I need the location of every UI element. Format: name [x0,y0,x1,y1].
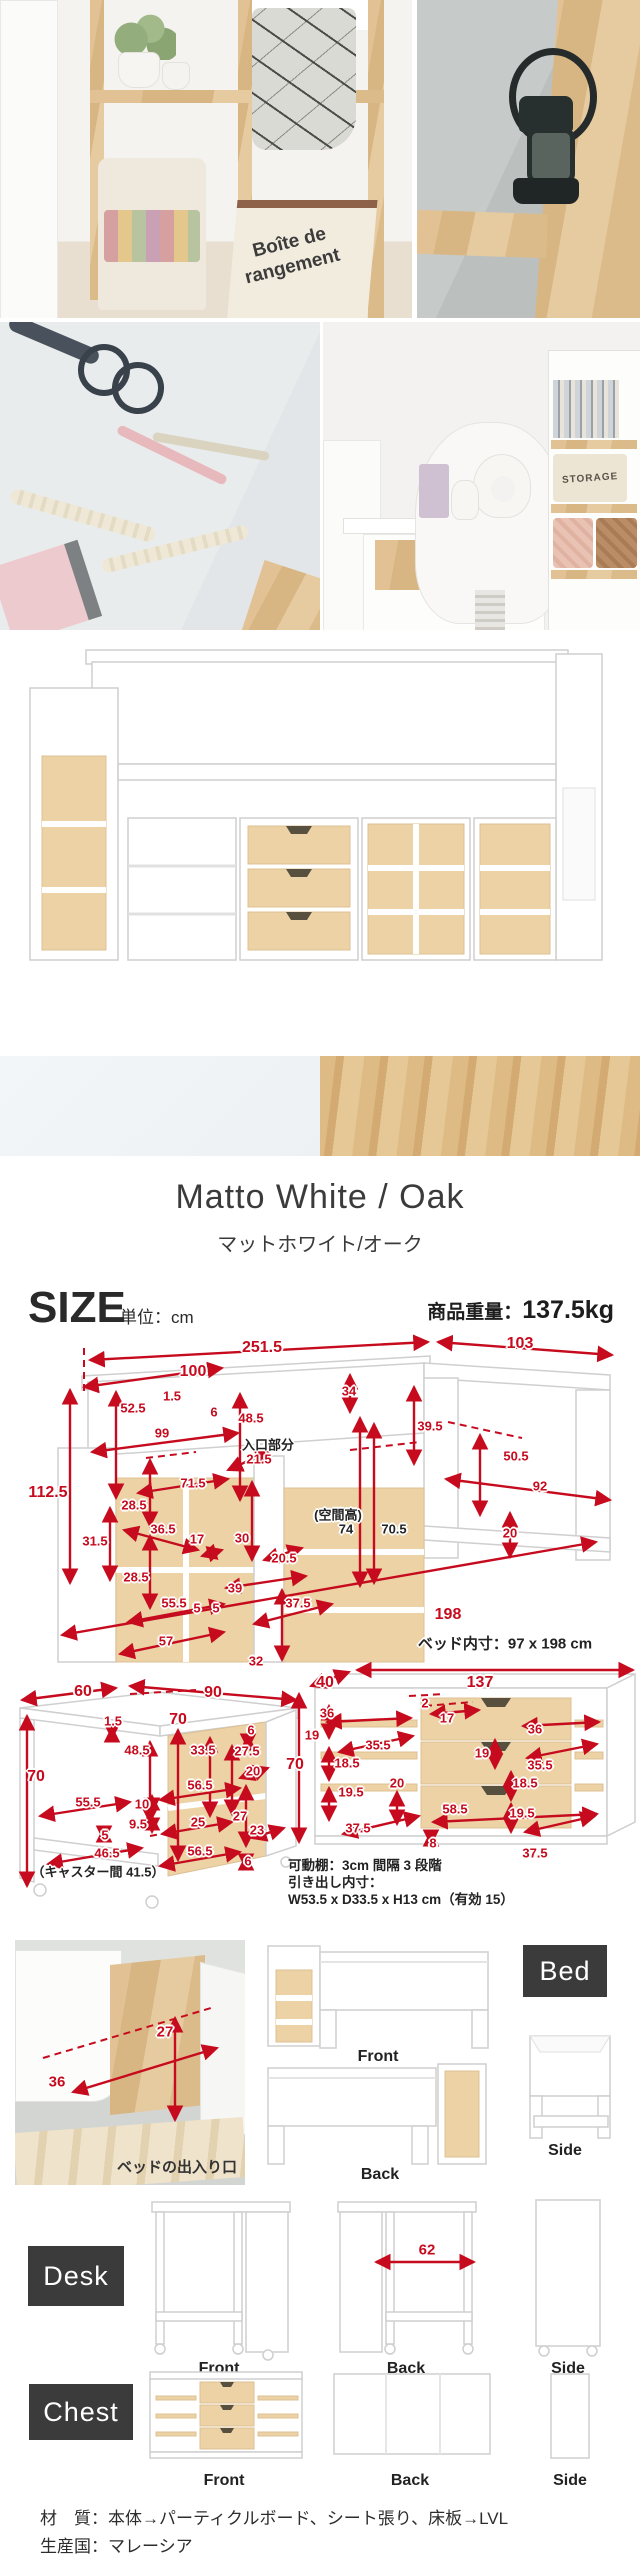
chest-tag: Chest [29,2384,133,2440]
dim-label: 2 [421,1696,428,1711]
dim-label: 90 [204,1684,222,1702]
dim-label: 198 [435,1606,462,1624]
dim-label: 57 [159,1634,173,1649]
bed-back-view [262,2060,492,2166]
entry-height-label: 27 [157,2024,174,2041]
storage-box-label: STORAGE [562,471,619,486]
desk-back-view [332,2194,482,2362]
dim-label: （キャスター間 41.5） [32,1862,165,1881]
dim-label: 20 [390,1776,404,1791]
pink-basket [553,518,593,568]
bed-front-view [262,1942,492,2050]
dim-label: 19 [475,1746,489,1761]
dim-label: 28.5 [123,1570,148,1585]
dim-label: 34 [342,1384,356,1399]
dim-label: 39 [228,1581,242,1596]
desk-dimension-diagram: 6090701.548.57033.5627.52056.555.5109.55… [0,1650,320,1940]
dim-label: 103 [507,1335,534,1353]
dim-label: 20 [246,1764,260,1779]
dim-label: 70 [169,1711,187,1729]
photo-shelf-storage: Boîte de rangement [0,0,412,318]
dim-label: 39.5 [417,1419,442,1434]
plant-pot [118,52,160,88]
brown-basket [596,518,637,568]
dim-label: 19.5 [338,1785,363,1800]
note-line: 引き出し内寸： [288,1875,618,1892]
dim-label: 18.5 [512,1776,537,1791]
loftbed-render [0,628,640,1008]
dim-label: 99 [155,1426,169,1441]
dim-label: 5 [212,1601,219,1616]
lantern-base [513,178,579,204]
dim-label: 25 [191,1815,205,1830]
dim-label: 37.5 [522,1846,547,1861]
country-line: 生産国：マレーシア [40,2533,620,2560]
dim-label: 55.5 [161,1596,186,1611]
product-detail-page: Boîte de rangement S [0,0,640,2560]
vase-hole [491,476,515,502]
size-unit: 単位：cm [120,1303,194,1328]
note-line: W53.5 x D33.5 x H13 cm（有効 15） [288,1892,618,1909]
dim-label: 28.5 [121,1498,146,1513]
desk-diagram-drawing [0,1650,320,1940]
dim-label: 36 [528,1722,542,1737]
desk-front-view [146,2194,296,2362]
small-pot [162,62,190,90]
dim-label: 27 [233,1809,247,1824]
lace-ribbon [9,488,157,544]
dim-label: 60 [74,1683,92,1701]
dim-label: 112.5 [28,1484,67,1502]
dim-label: 8 [429,1836,436,1851]
dim-label: 19.5 [509,1806,534,1821]
shelf-bar [551,504,637,513]
dim-label: 74 [339,1522,353,1537]
bed-side-panel [0,0,58,318]
dim-label: 48.5 [238,1411,263,1426]
dim-label: 9.5 [129,1817,147,1832]
bed-side-label: Side [548,2142,582,2160]
dim-label: 1.5 [104,1714,122,1729]
swatch-oak [320,1056,640,1156]
desk-back-width-label: 62 [419,2242,436,2259]
dim-label: 20 [503,1526,517,1541]
chest-back-view [330,2368,494,2462]
chest-side-label: Side [553,2472,587,2490]
lantern-top [519,96,573,132]
swatch-matto-white [0,1056,320,1156]
weight-label: 商品重量： [427,1302,522,1323]
dim-label: 23 [250,1823,264,1838]
dim-label: 40 [316,1674,334,1692]
dim-label: 27.5 [234,1744,259,1759]
desk-side-view [516,2190,616,2362]
small-vase [451,480,479,520]
desk-tag: Desk [28,2246,124,2306]
dim-label: 70 [27,1768,45,1786]
dim-label: 5 [101,1828,108,1843]
dim-label: 251.5 [242,1339,282,1357]
chest-front-label: Front [204,2472,245,2490]
dim-label: 1.5 [163,1389,181,1404]
dim-label: 20.5 [271,1551,296,1566]
bed-diagram-drawing [0,1330,640,1670]
color-name-en: Matto White / Oak [0,1178,640,1217]
dim-label: 6 [247,1723,254,1738]
entry-caption: ベッドの出入り口 [117,2156,237,2177]
chest-front-view [146,2368,306,2464]
dim-label: 10 [135,1797,149,1812]
dim-label: 46.5 [94,1846,119,1861]
bed-entry-arrows [15,1940,245,2185]
color-name-ja: マットホワイト/オーク [0,1228,640,1257]
dim-label: 6 [210,1405,217,1420]
dim-label: 30 [235,1531,249,1546]
dim-label: 52.5 [120,1401,145,1416]
photo-desk-chair: STORAGE [323,322,640,630]
dim-label: 17 [190,1532,204,1547]
chair-stem [475,590,505,630]
bed-back-label: Back [361,2166,399,2184]
entry-width-label: 36 [49,2074,66,2091]
shelf-bar [551,440,637,449]
photo-stationery [0,322,320,630]
dim-label: 32 [249,1654,263,1669]
stair-step [417,210,548,259]
storage-box: STORAGE [553,454,627,502]
chest-notes: 可動棚：3cm 間隔 3 段階 引き出し内寸： W53.5 x D33.5 x … [288,1858,618,1909]
shelf-bar [551,570,637,579]
dim-label: 70.5 [381,1522,406,1537]
candle [419,464,449,518]
photo-lantern-stairs [417,0,640,318]
chest-dimension-diagram: 4013770361935.518.519.537.52172058.58361… [285,1648,640,1863]
dim-label: 33.5 [190,1743,215,1758]
dim-label: 36.5 [150,1522,175,1537]
dim-label: 35.5 [365,1738,390,1753]
pink-pen [116,424,228,486]
dim-label: 50.5 [503,1449,528,1464]
patterned-canister [252,8,356,150]
dim-label: 19 [305,1728,319,1743]
dim-label: 5 [193,1601,200,1616]
dim-label: 56.5 [187,1778,212,1793]
bed-tag: Bed [523,1945,607,1997]
dim-label: 48.5 [124,1743,149,1758]
bed-entry-photo: 27 36 ベッドの出入り口 [15,1940,245,2185]
weight-value: 137.5kg [522,1296,614,1324]
note-line: 可動棚：3cm 間隔 3 段階 [288,1858,618,1875]
product-weight: 商品重量：137.5kg [427,1296,614,1325]
dim-label: 6 [244,1854,251,1869]
dim-label: 92 [533,1479,547,1494]
chest-side-view [545,2368,595,2464]
dim-label: 21.5 [246,1452,271,1467]
dim-label: 70 [286,1756,304,1774]
dim-label: 56.5 [187,1844,212,1859]
dim-label: 137 [467,1674,494,1692]
dim-label: 37.5 [345,1821,370,1836]
size-heading: SIZE [28,1283,126,1333]
bed-side-view [520,2022,620,2142]
chest-back-label: Back [391,2472,429,2490]
floor-corner [240,560,320,630]
material-line: 材 質：本体→パーティクルボード、シート張り、床板→LVL [40,2505,620,2533]
notebook [0,540,102,630]
dim-label: 18.5 [334,1756,359,1771]
dim-label: 31.5 [82,1534,107,1549]
dim-label: 35.5 [527,1758,552,1773]
material-info: 材 質：本体→パーティクルボード、シート張り、床板→LVL 生産国：マレーシア [40,2505,620,2560]
dim-label: 36 [320,1706,334,1721]
dim-label: 55.5 [75,1795,100,1810]
dim-label: 100 [180,1363,207,1381]
dim-label: 17 [440,1711,454,1726]
dim-label: 71.5 [180,1476,205,1491]
lantern-glass [527,128,575,184]
bed-dimension-diagram: 251.51031001.5652.59948.5入口部分21.571.5112… [0,1330,640,1670]
books [553,380,619,438]
bag-contents [104,210,200,262]
dim-label: ベッド内寸：97 x 198 cm [418,1633,592,1654]
dim-label: 58.5 [442,1802,467,1817]
dim-label: 37.5 [285,1596,310,1611]
